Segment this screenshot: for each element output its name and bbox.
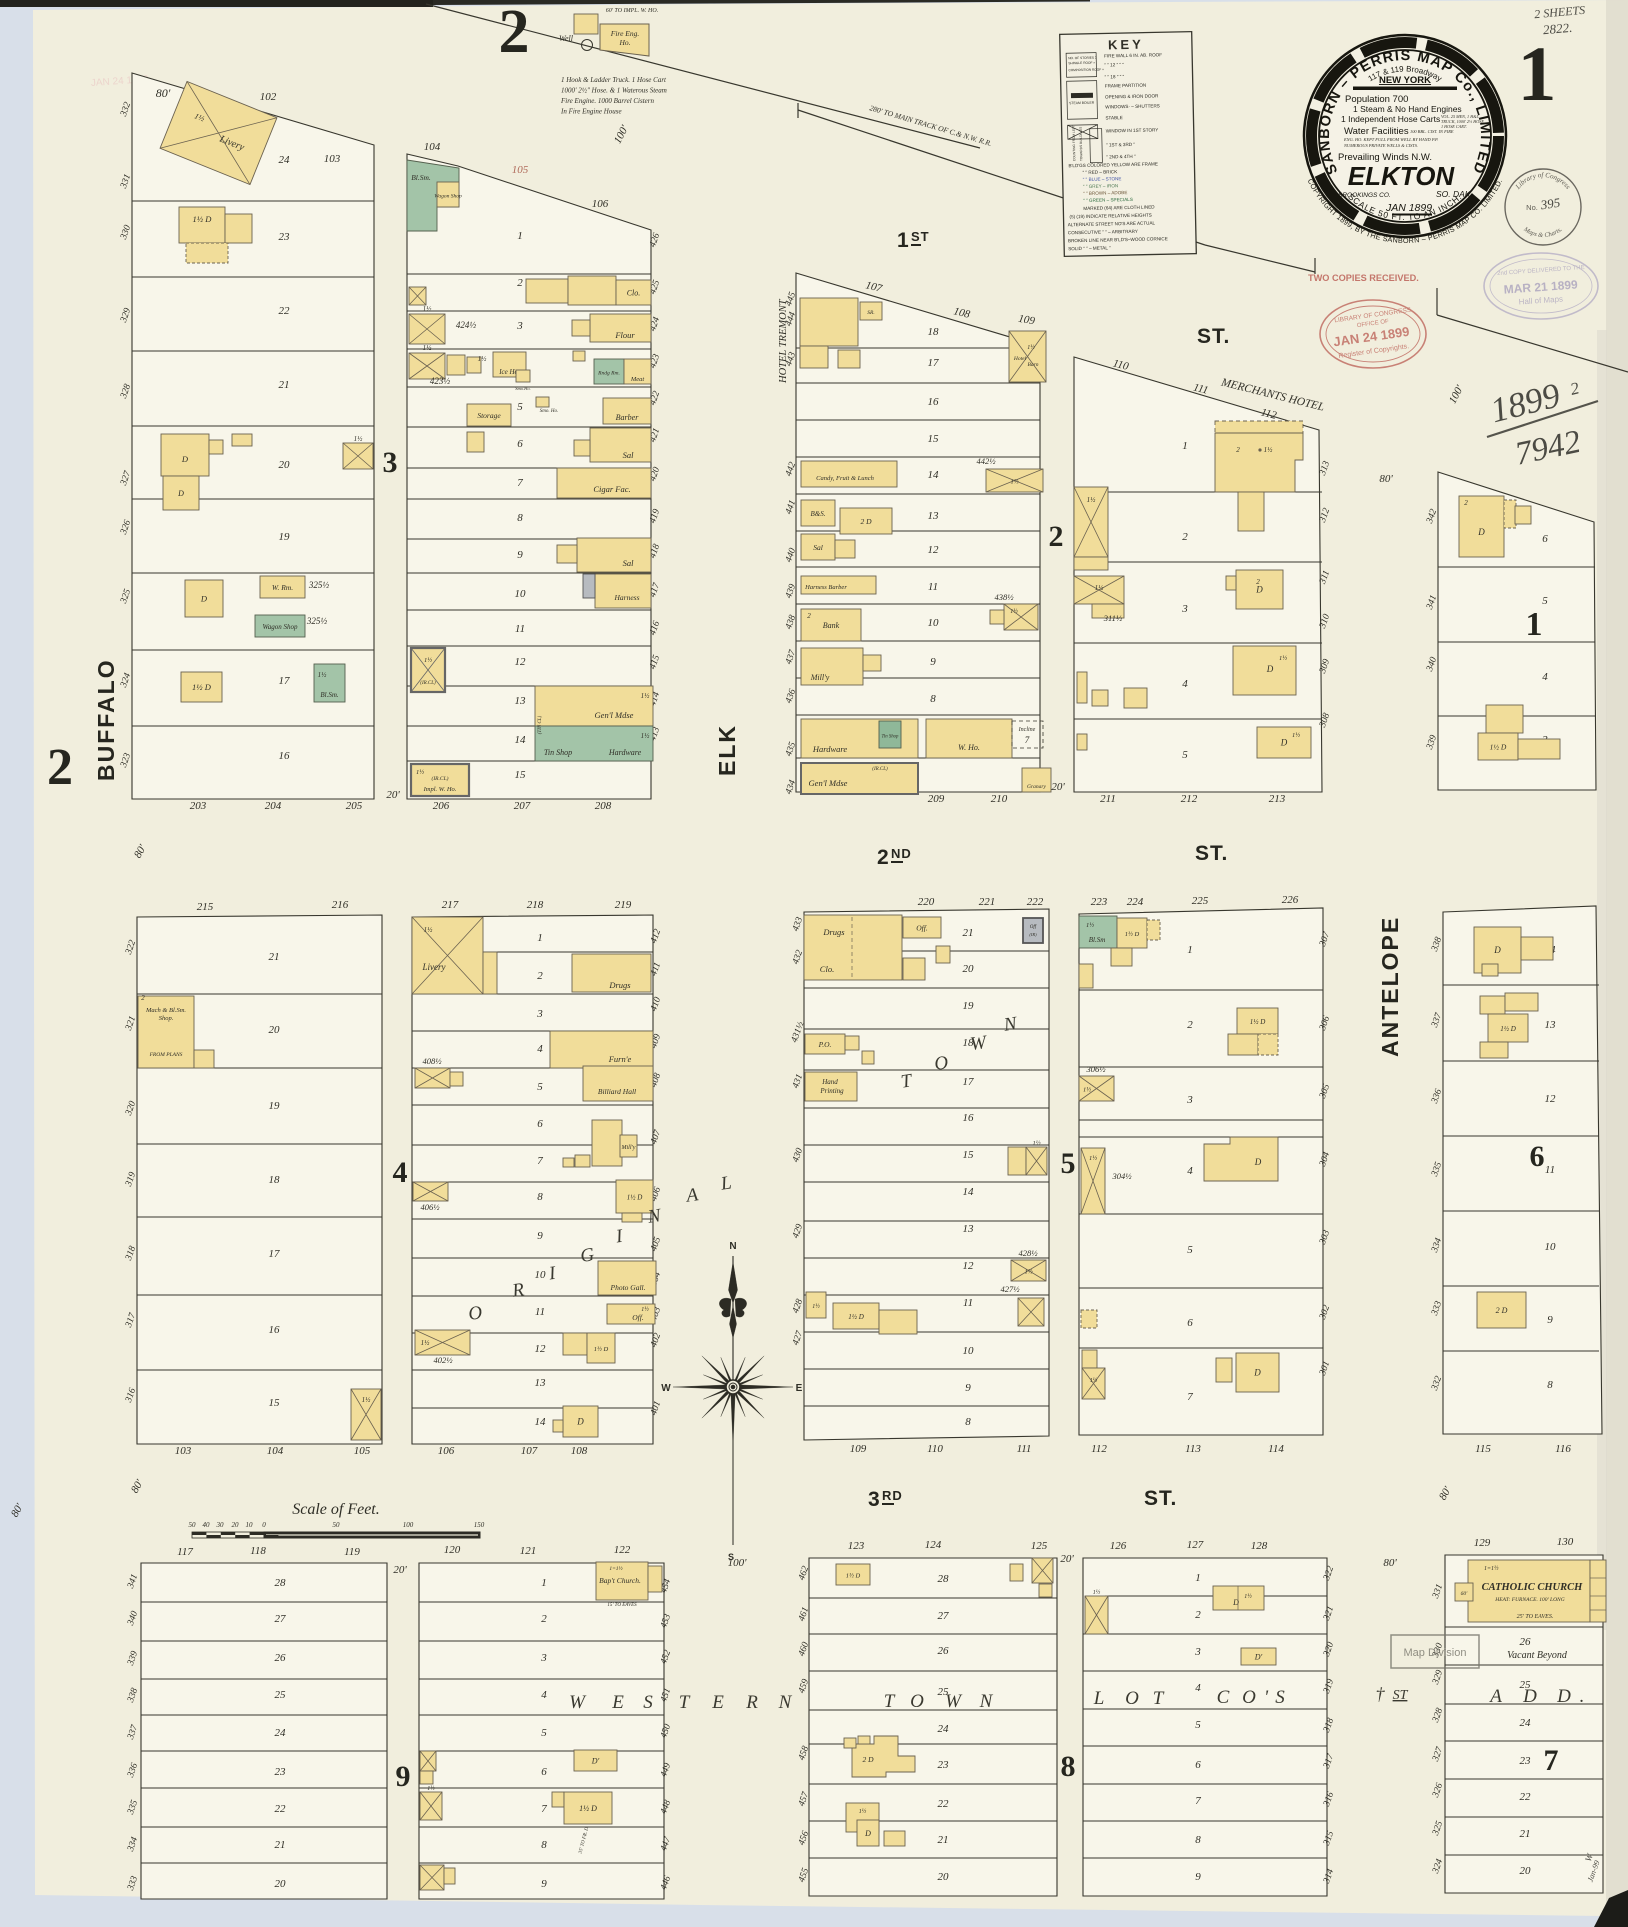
- svg-text:210: 210: [991, 793, 1008, 805]
- svg-text:NO. OF STORIES 3: NO. OF STORIES 3: [1068, 56, 1097, 61]
- svg-text:13: 13: [515, 695, 527, 707]
- svg-text:ANTELOPE: ANTELOPE: [1377, 916, 1403, 1057]
- svg-text:N: N: [979, 1691, 994, 1712]
- svg-text:2: 2: [1236, 446, 1240, 454]
- svg-text:1½: 1½: [427, 1785, 435, 1792]
- svg-text:Off: Off: [1030, 925, 1037, 930]
- svg-text:4: 4: [537, 1043, 543, 1055]
- svg-text:Sal: Sal: [813, 543, 823, 552]
- svg-text:5: 5: [517, 401, 523, 413]
- svg-text:8: 8: [537, 1191, 543, 1203]
- svg-text:26: 26: [1520, 1636, 1532, 1648]
- svg-text:15: 15: [963, 1149, 975, 1161]
- svg-text:100: 100: [403, 1521, 414, 1529]
- svg-text:211: 211: [1100, 793, 1116, 805]
- svg-text:Wagon Shop: Wagon Shop: [263, 623, 298, 631]
- svg-text:D: D: [1556, 1686, 1571, 1707]
- svg-text:Smo. Ho.: Smo. Ho.: [540, 409, 558, 414]
- svg-text:12: 12: [515, 656, 527, 668]
- svg-text:408½: 408½: [422, 1056, 442, 1066]
- svg-text:11: 11: [515, 623, 525, 635]
- svg-text:2: 2: [541, 1613, 547, 1625]
- svg-text:123: 123: [848, 1540, 865, 1552]
- svg-text:3: 3: [1194, 1646, 1201, 1658]
- svg-text:150: 150: [474, 1521, 485, 1529]
- svg-text:24: 24: [275, 1727, 287, 1739]
- svg-text:13: 13: [535, 1377, 547, 1389]
- svg-text:1=1½: 1=1½: [609, 1565, 622, 1572]
- svg-text:2: 2: [141, 994, 145, 1002]
- svg-text:128: 128: [1251, 1540, 1268, 1552]
- svg-text:CATHOLIC CHURCH: CATHOLIC CHURCH: [1482, 1582, 1583, 1593]
- svg-text:TOWARDS BUILDINGS: TOWARDS BUILDINGS: [1079, 127, 1084, 161]
- svg-text:1=1½: 1=1½: [1484, 1565, 1499, 1572]
- svg-text:9: 9: [396, 1760, 411, 1793]
- svg-text:1½ D: 1½ D: [193, 214, 213, 224]
- svg-text:213: 213: [1269, 793, 1286, 805]
- svg-text:104: 104: [267, 1445, 284, 1457]
- svg-text:16: 16: [279, 750, 291, 762]
- svg-text:10: 10: [515, 588, 527, 600]
- svg-text:(TIN CL): (TIN CL): [538, 715, 543, 734]
- svg-text:102: 102: [260, 91, 277, 103]
- svg-text:Impl. W. Ho.: Impl. W. Ho.: [423, 786, 457, 793]
- svg-text:215: 215: [197, 901, 214, 913]
- svg-text:1½: 1½: [354, 435, 364, 443]
- svg-text:1½: 1½: [1244, 1593, 1252, 1600]
- svg-text:216: 216: [332, 899, 349, 911]
- svg-text:ST: ST: [1393, 1688, 1409, 1703]
- svg-text:20: 20: [963, 963, 975, 975]
- svg-text:D: D: [1280, 738, 1288, 748]
- svg-text:221: 221: [979, 896, 996, 908]
- svg-text:2: 2: [1464, 499, 1468, 507]
- svg-text:Rndg Rm.: Rndg Rm.: [597, 371, 620, 377]
- svg-text:No.: No.: [1526, 203, 1538, 212]
- svg-text:1 Hook & Ladder Truck. 1 Hose: 1 Hook & Ladder Truck. 1 Hose Cart: [561, 76, 667, 84]
- svg-text:1½: 1½: [641, 732, 651, 740]
- svg-text:28: 28: [275, 1577, 287, 1589]
- svg-text:25' TO EAVES.: 25' TO EAVES.: [1517, 1614, 1554, 1620]
- svg-text:1: 1: [537, 932, 543, 944]
- svg-text:COUNTING FROM LEFT: COUNTING FROM LEFT: [1072, 125, 1077, 161]
- svg-text:1½: 1½: [641, 692, 651, 700]
- svg-text:Tin Shop: Tin Shop: [882, 735, 900, 740]
- svg-text:7: 7: [1187, 1391, 1193, 1403]
- svg-text:ST.: ST.: [1197, 325, 1230, 348]
- svg-text:4: 4: [1195, 1682, 1201, 1694]
- svg-text:13: 13: [1545, 1019, 1557, 1031]
- svg-text:1 Steam & No Hand Engines: 1 Steam & No Hand Engines: [1353, 104, 1462, 114]
- svg-text:20: 20: [938, 1871, 950, 1883]
- svg-text:1½: 1½: [1010, 608, 1018, 615]
- svg-text:4: 4: [1542, 671, 1548, 683]
- svg-text:21: 21: [275, 1839, 286, 1851]
- svg-text:D: D: [1255, 585, 1263, 595]
- svg-text:109: 109: [850, 1443, 867, 1455]
- svg-text:O: O: [910, 1691, 924, 1712]
- svg-text:1½: 1½: [1086, 922, 1094, 929]
- svg-text:6: 6: [517, 438, 523, 450]
- svg-text:23: 23: [1520, 1755, 1532, 1767]
- svg-text:105: 105: [512, 164, 529, 176]
- svg-text:D: D: [1522, 1686, 1537, 1707]
- svg-text:325½: 325½: [308, 580, 330, 590]
- svg-text:19: 19: [279, 531, 291, 543]
- svg-text:22: 22: [1520, 1791, 1532, 1803]
- svg-text:125: 125: [1031, 1540, 1048, 1552]
- svg-text:106: 106: [438, 1445, 455, 1457]
- svg-text:106: 106: [592, 198, 609, 210]
- svg-text:1½: 1½: [1010, 479, 1018, 486]
- svg-text:1½: 1½: [1089, 1155, 1097, 1162]
- svg-text:1½: 1½: [1090, 1377, 1098, 1384]
- svg-text:402½: 402½: [433, 1355, 453, 1365]
- svg-text:C: C: [1217, 1687, 1230, 1708]
- svg-text:21: 21: [279, 379, 290, 391]
- svg-text:26: 26: [275, 1652, 287, 1664]
- svg-text:1½: 1½: [318, 671, 328, 679]
- svg-text:Barber: Barber: [616, 413, 640, 422]
- svg-text:Wagon Shop: Wagon Shop: [434, 194, 462, 200]
- svg-text:Sal: Sal: [623, 450, 635, 460]
- svg-text:119: 119: [344, 1546, 360, 1558]
- svg-text:Granary: Granary: [1027, 784, 1047, 790]
- svg-text:Bl.Sm: Bl.Sm: [1089, 936, 1106, 944]
- svg-text:Livery: Livery: [422, 962, 446, 972]
- svg-text:2: 2: [1187, 1019, 1193, 1031]
- svg-text:Smo.Ho.: Smo.Ho.: [515, 386, 531, 391]
- svg-text:" " 18 " " ": " " 18 " " ": [1105, 74, 1125, 79]
- svg-text:Photo Gall.: Photo Gall.: [610, 1283, 646, 1292]
- svg-text:Mill'y: Mill'y: [810, 673, 830, 682]
- svg-text:T: T: [884, 1691, 896, 1712]
- svg-text:311½: 311½: [1103, 613, 1123, 623]
- svg-text:226: 226: [1282, 894, 1299, 906]
- svg-text:W: W: [569, 1692, 587, 1713]
- svg-text:Gen'l Mdse: Gen'l Mdse: [595, 710, 634, 720]
- svg-text:Ho.: Ho.: [618, 38, 630, 47]
- svg-text:21: 21: [938, 1834, 949, 1846]
- svg-text:" 1ST & 3RD ": " 1ST & 3RD ": [1106, 142, 1135, 148]
- svg-text:D: D: [1493, 945, 1501, 955]
- svg-text:16: 16: [269, 1324, 281, 1336]
- svg-text:442½: 442½: [976, 456, 996, 466]
- svg-text:14: 14: [535, 1416, 547, 1428]
- svg-text:N: N: [778, 1692, 793, 1713]
- svg-text:1½ D: 1½ D: [627, 1194, 643, 1202]
- svg-text:3: 3: [383, 446, 398, 479]
- svg-text:1½: 1½: [1083, 1087, 1091, 1094]
- svg-text:Water Facilities: Water Facilities: [1344, 126, 1409, 137]
- svg-text:P.O.: P.O.: [818, 1040, 832, 1049]
- svg-text:1½ D: 1½ D: [848, 1313, 864, 1321]
- svg-text:1: 1: [1182, 440, 1188, 452]
- svg-text:1: 1: [541, 1577, 547, 1589]
- svg-text:427½: 427½: [1000, 1284, 1020, 1294]
- svg-text:7: 7: [1025, 735, 1030, 745]
- svg-text:4: 4: [393, 1156, 408, 1189]
- svg-text:Meat: Meat: [630, 376, 645, 383]
- svg-text:Harness Barber: Harness Barber: [804, 584, 847, 591]
- svg-text:5: 5: [541, 1727, 547, 1739]
- svg-text:24: 24: [279, 154, 291, 166]
- svg-text:FRAME PARTITION: FRAME PARTITION: [1105, 83, 1147, 89]
- svg-text:In Fire Engine House: In Fire Engine House: [560, 108, 622, 116]
- svg-text:108: 108: [571, 1445, 588, 1457]
- svg-text:S: S: [643, 1692, 653, 1713]
- svg-text:3: 3: [540, 1652, 547, 1664]
- svg-text:N: N: [729, 1241, 736, 1252]
- svg-text:ST.: ST.: [1195, 842, 1228, 865]
- svg-text:9: 9: [965, 1382, 971, 1394]
- svg-text:17: 17: [963, 1076, 975, 1088]
- svg-text:11: 11: [963, 1297, 973, 1309]
- svg-text:20: 20: [1520, 1865, 1532, 1877]
- svg-text:24: 24: [1520, 1717, 1532, 1729]
- svg-text:424½: 424½: [456, 320, 477, 330]
- svg-text:" " RED – BRICK: " " RED – BRICK: [1083, 169, 1119, 175]
- svg-text:D: D: [200, 594, 208, 604]
- svg-text:9: 9: [537, 1230, 543, 1242]
- svg-text:" " GREY – IRON: " " GREY – IRON: [1083, 183, 1118, 189]
- svg-text:204: 204: [265, 800, 282, 812]
- svg-text:ND: ND: [891, 846, 912, 861]
- svg-text:S: S: [728, 1552, 734, 1562]
- svg-text:304½: 304½: [1111, 1171, 1132, 1181]
- svg-text:8: 8: [1061, 1750, 1076, 1783]
- svg-text:Mill'y: Mill'y: [621, 1145, 636, 1151]
- svg-text:207: 207: [514, 800, 531, 812]
- svg-text:8: 8: [930, 693, 936, 705]
- svg-text:Hotel: Hotel: [1013, 356, 1027, 362]
- svg-text:4: 4: [541, 1689, 547, 1701]
- svg-text:(IR.CL): (IR.CL): [872, 767, 888, 772]
- svg-text:3: 3: [1181, 603, 1188, 615]
- svg-text:L: L: [1093, 1688, 1105, 1709]
- svg-text:27: 27: [275, 1613, 287, 1625]
- svg-text:W: W: [945, 1691, 963, 1712]
- svg-text:(IR): (IR): [1029, 932, 1037, 937]
- svg-text:103: 103: [175, 1445, 192, 1457]
- svg-text:Drugs: Drugs: [822, 927, 845, 937]
- svg-text:" 2ND & 4TH ": " 2ND & 4TH ": [1106, 154, 1136, 160]
- svg-text:18: 18: [928, 326, 940, 338]
- svg-text:15: 15: [269, 1397, 281, 1409]
- svg-text:5: 5: [537, 1081, 543, 1093]
- svg-text:1½: 1½: [416, 769, 424, 776]
- svg-text:Mach & Bl.Sm.: Mach & Bl.Sm.: [145, 1007, 186, 1014]
- svg-text:80': 80': [156, 86, 171, 100]
- svg-text:107: 107: [521, 1445, 538, 1457]
- svg-text:5: 5: [1195, 1719, 1201, 1731]
- svg-text:2: 2: [1256, 578, 1260, 586]
- svg-text:Candy, Fruit & Lunch: Candy, Fruit & Lunch: [816, 475, 874, 482]
- svg-text:6: 6: [1195, 1759, 1201, 1771]
- svg-text:11: 11: [1545, 1164, 1555, 1176]
- svg-text:115: 115: [1475, 1443, 1491, 1455]
- svg-text:1½ D: 1½ D: [594, 1346, 609, 1353]
- svg-text:Hand: Hand: [821, 1078, 838, 1086]
- svg-text:120: 120: [444, 1544, 461, 1556]
- svg-text:1½: 1½: [362, 1396, 372, 1404]
- svg-text:306½: 306½: [1085, 1064, 1106, 1074]
- svg-text:5: 5: [1542, 595, 1548, 607]
- svg-text:Fire Eng.: Fire Eng.: [610, 29, 640, 38]
- svg-text:SR.: SR.: [867, 310, 875, 316]
- svg-text:104: 104: [424, 141, 441, 153]
- svg-text:Barn: Barn: [1028, 362, 1039, 368]
- svg-text:203: 203: [190, 800, 207, 812]
- svg-text:19: 19: [269, 1100, 281, 1112]
- svg-text:Hardware: Hardware: [608, 748, 642, 757]
- svg-text:111: 111: [1017, 1443, 1032, 1455]
- svg-text:22: 22: [279, 305, 291, 317]
- svg-text:D: D: [181, 454, 189, 464]
- svg-text:0: 0: [262, 1521, 266, 1529]
- svg-text:10: 10: [246, 1521, 254, 1529]
- svg-text:80': 80': [1379, 473, 1393, 485]
- svg-text:21: 21: [269, 951, 280, 963]
- svg-text:212: 212: [1181, 793, 1198, 805]
- svg-text:1: 1: [1187, 944, 1193, 956]
- svg-text:2 D: 2 D: [860, 517, 872, 526]
- svg-text:219: 219: [615, 899, 632, 911]
- svg-text:8: 8: [1547, 1379, 1553, 1391]
- svg-text:2: 2: [877, 846, 890, 869]
- svg-text:222: 222: [1027, 896, 1044, 908]
- svg-text:3: 3: [868, 1488, 881, 1511]
- svg-text:80': 80': [1383, 1557, 1397, 1569]
- svg-text:225: 225: [1192, 895, 1209, 907]
- svg-text:Drugs: Drugs: [608, 980, 631, 990]
- svg-text:18: 18: [269, 1174, 281, 1186]
- svg-text:20: 20: [275, 1878, 287, 1890]
- svg-text:25: 25: [275, 1689, 287, 1701]
- svg-text:2: 2: [807, 612, 811, 620]
- svg-text:8: 8: [1195, 1834, 1201, 1846]
- svg-text:E: E: [796, 1383, 803, 1394]
- svg-text:16: 16: [963, 1112, 975, 1124]
- svg-text:10: 10: [1545, 1241, 1557, 1253]
- svg-text:(IR.CL): (IR.CL): [432, 775, 449, 782]
- svg-text:D: D: [1266, 664, 1274, 674]
- svg-text:7: 7: [541, 1803, 547, 1815]
- svg-text:22: 22: [275, 1803, 287, 1815]
- svg-text:1½ D: 1½ D: [579, 1804, 597, 1813]
- svg-text:21: 21: [1520, 1828, 1531, 1840]
- svg-text:1½: 1½: [424, 657, 432, 664]
- svg-text:105: 105: [354, 1445, 371, 1457]
- svg-text:19: 19: [963, 1000, 975, 1012]
- svg-text:W: W: [661, 1383, 671, 1394]
- svg-text:A: A: [1488, 1686, 1502, 1707]
- svg-text:" " GREEN – SPECI: " " GREEN – SPECIALS: [1083, 197, 1133, 203]
- svg-text:W. Rm.: W. Rm.: [272, 583, 293, 592]
- svg-text:3: 3: [1186, 1094, 1193, 1106]
- svg-text:2: 2: [499, 0, 530, 66]
- svg-text:20': 20': [393, 1564, 407, 1576]
- svg-text:1½: 1½: [423, 305, 433, 313]
- svg-text:1½ D: 1½ D: [1125, 931, 1140, 938]
- svg-text:ENG. HO. KEPT FULL FROM WELL B: ENG. HO. KEPT FULL FROM WELL BY HAND P.P…: [1343, 137, 1438, 142]
- svg-text:12: 12: [535, 1343, 547, 1355]
- svg-text:8: 8: [517, 512, 523, 524]
- svg-text:24: 24: [938, 1723, 950, 1735]
- svg-text:122: 122: [614, 1544, 631, 1556]
- svg-text:2: 2: [537, 970, 543, 982]
- svg-text:E: E: [611, 1692, 624, 1713]
- svg-text:1½ D: 1½ D: [1250, 1018, 1266, 1026]
- svg-text:O: O: [1242, 1687, 1256, 1708]
- svg-text:D: D: [1253, 1368, 1261, 1378]
- svg-text:1½: 1½: [421, 1339, 431, 1347]
- svg-text:B&S.: B&S.: [811, 510, 826, 518]
- svg-text:Well: Well: [559, 34, 574, 43]
- svg-text:E: E: [711, 1692, 724, 1713]
- svg-text:208: 208: [595, 800, 612, 812]
- svg-text:D: D: [1254, 1157, 1262, 1167]
- svg-text:ELK: ELK: [714, 724, 740, 776]
- svg-text:2: 2: [47, 739, 73, 796]
- svg-text:129: 129: [1474, 1537, 1491, 1549]
- svg-text:1½ D: 1½ D: [846, 1573, 861, 1580]
- svg-text:20: 20: [279, 459, 291, 471]
- svg-text:COMPOSITION ROOF ×: COMPOSITION ROOF ×: [1068, 67, 1104, 72]
- svg-text:1½: 1½: [1087, 496, 1097, 504]
- svg-text:15: 15: [928, 433, 940, 445]
- svg-text:100 BBL. CIST. IN FIRE: 100 BBL. CIST. IN FIRE: [1410, 129, 1454, 134]
- svg-text:STEAM BOILER: STEAM BOILER: [1069, 101, 1095, 106]
- svg-text:220: 220: [918, 896, 935, 908]
- svg-text:1½: 1½: [1024, 1269, 1032, 1276]
- svg-text:20': 20': [386, 789, 400, 801]
- svg-text:Vacant Beyond: Vacant Beyond: [1507, 1650, 1568, 1661]
- svg-text:5: 5: [1061, 1147, 1076, 1180]
- svg-text:8: 8: [965, 1416, 971, 1428]
- svg-text:BUFFALO: BUFFALO: [93, 658, 119, 781]
- svg-text:9: 9: [1195, 1871, 1201, 1883]
- svg-text:6: 6: [541, 1766, 547, 1778]
- svg-text:17: 17: [279, 675, 291, 687]
- svg-text:112: 112: [1091, 1443, 1107, 1455]
- svg-text:13: 13: [928, 510, 940, 522]
- svg-text:15: 15: [515, 769, 527, 781]
- svg-text:10: 10: [535, 1269, 547, 1281]
- svg-text:50: 50: [333, 1521, 341, 1529]
- svg-text:26: 26: [938, 1645, 950, 1657]
- svg-text:Tin Shop: Tin Shop: [544, 748, 572, 757]
- svg-text:2 D: 2 D: [1496, 1306, 1508, 1315]
- svg-text:224: 224: [1127, 896, 1144, 908]
- svg-text:12: 12: [928, 544, 940, 556]
- svg-text:21: 21: [963, 927, 974, 939]
- svg-text:Billiard Hall: Billiard Hall: [598, 1087, 636, 1096]
- svg-text:60': 60': [1461, 1591, 1469, 1597]
- svg-text:13: 13: [963, 1223, 975, 1235]
- svg-text:1½: 1½: [1264, 446, 1274, 454]
- svg-text:40: 40: [203, 1521, 211, 1529]
- svg-text:1½: 1½: [1032, 1140, 1040, 1147]
- svg-text:" " BLUE – STONE: " " BLUE – STONE: [1083, 176, 1122, 182]
- svg-text:1½ D: 1½ D: [1490, 743, 1507, 752]
- svg-text:Gen'l Mdse: Gen'l Mdse: [809, 778, 848, 788]
- svg-text:218: 218: [527, 899, 544, 911]
- svg-text:406½: 406½: [420, 1202, 440, 1212]
- svg-text:20': 20': [1051, 781, 1065, 793]
- svg-text:BROOKINGS CO.: BROOKINGS CO.: [1338, 192, 1391, 199]
- svg-text:12: 12: [1545, 1093, 1557, 1105]
